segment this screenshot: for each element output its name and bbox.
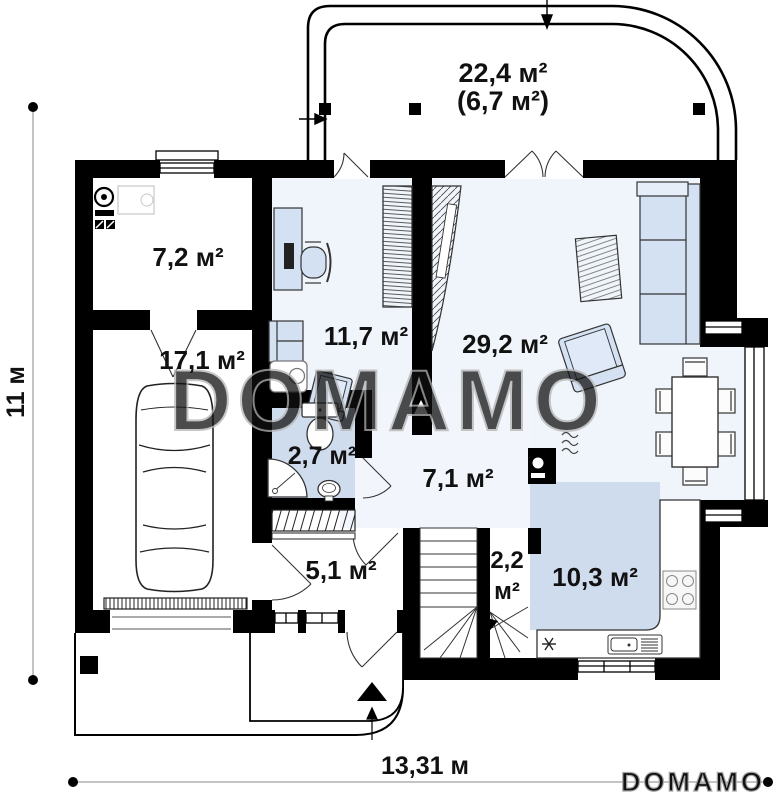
garage-area-label: 17,1 м²: [159, 345, 245, 375]
stairs-area-unit-label: м²: [494, 578, 520, 605]
height-dimension-label: 11 м: [2, 366, 30, 418]
driveway-outline: [75, 633, 403, 735]
bay-radiator-top: [705, 321, 742, 334]
boiler-area-label: 7,2 м²: [152, 242, 224, 272]
entry-area-label: 5,1 м²: [305, 555, 377, 585]
monitor-icon: [284, 243, 294, 269]
sofa-icon: [637, 182, 700, 344]
office-wardrobe-icon: [383, 186, 412, 307]
terrace-area-label: 22,4 м²: [458, 58, 547, 88]
coat-closet-icon: [272, 510, 355, 539]
bay-window: [745, 347, 764, 500]
porch-post: [80, 656, 98, 674]
floor-plan-canvas: DOMAMO DOMAMO 22,4 м² (6,7 м²) 7,2 м² 17…: [0, 0, 780, 800]
living-area-label: 29,2 м²: [462, 329, 548, 359]
entry-window-1: [275, 613, 298, 623]
stove-icon: [663, 571, 696, 609]
terrace-area-alt-label: (6,7 м²): [457, 86, 549, 116]
room-kitchen-floor: [530, 482, 660, 630]
width-dimension-label: 13,31 м: [381, 752, 469, 780]
bay-radiator-bottom: [705, 509, 742, 522]
entry-window-2: [306, 613, 338, 623]
kitchen-sink-icon: [608, 635, 662, 654]
kitchen-window: [578, 661, 655, 672]
watermark-corner: DOMAMO: [621, 767, 765, 797]
floor-plan: DOMAMO DOMAMO 22,4 м² (6,7 м²) 7,2 м² 17…: [0, 0, 780, 800]
bath-area-label: 2,7 м²: [288, 442, 357, 470]
office-area-label: 11,7 м²: [324, 321, 409, 351]
boiler-equipment-icon: [95, 186, 154, 229]
stairs-area-value-label: 2,2: [490, 547, 523, 574]
entry-arrow-left-icon: [299, 114, 326, 124]
rug-icon: [575, 235, 621, 301]
hall-area-label: 7,1 м²: [422, 463, 494, 493]
kitchen-area-label: 10,3 м²: [552, 562, 638, 592]
